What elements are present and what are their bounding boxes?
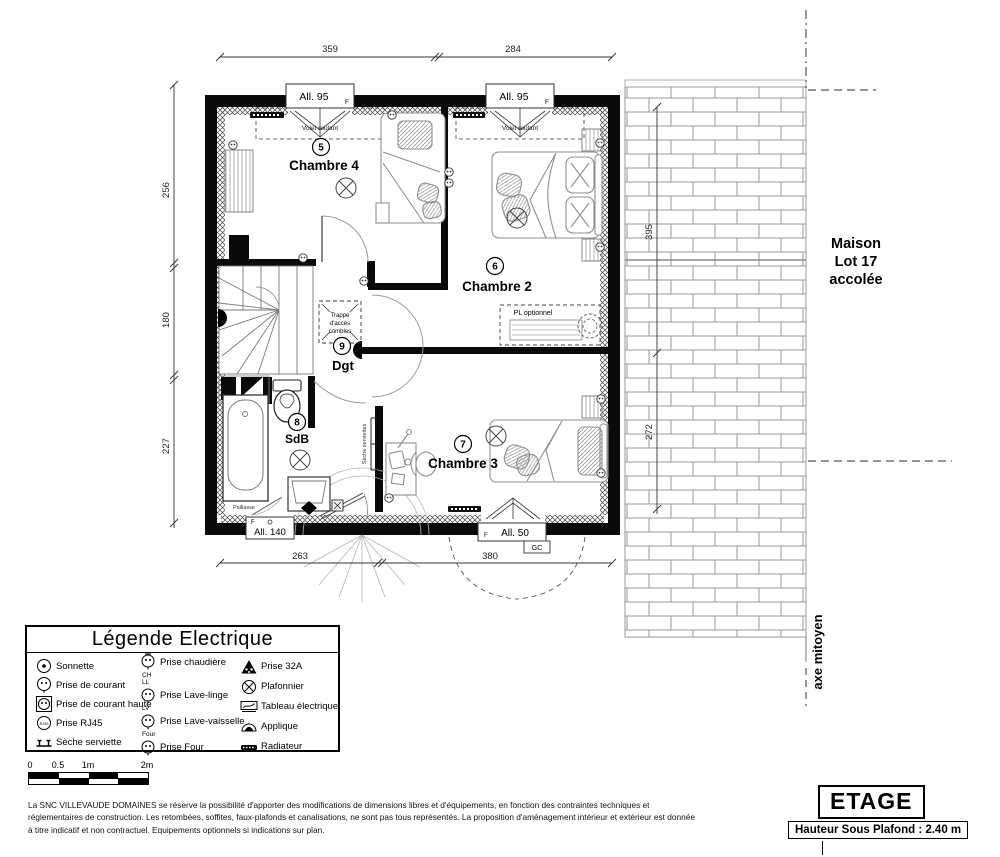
trappe-line3: combles [329, 329, 351, 335]
legend-label: Radiateur [261, 741, 302, 752]
legend-label: Prise de courant [56, 680, 125, 691]
svg-text:RJ45: RJ45 [40, 722, 49, 726]
neighbor-line2: Lot 17 [835, 254, 878, 270]
window-bottom-right: F All. 50 GC [449, 498, 585, 599]
socket-icon [597, 469, 605, 477]
socket-icon [596, 139, 604, 147]
room-name: Chambre 4 [289, 158, 359, 173]
staircase [219, 266, 313, 374]
trappe-line1: Trappe [331, 313, 350, 319]
plafonnier-icon [290, 450, 310, 470]
socket-icon [35, 676, 53, 694]
towel-warmer-icon [35, 733, 53, 751]
socket-icon [229, 141, 237, 149]
floor-plan-page: Maison Lot 17 accolée axe mitoyen [0, 0, 1000, 857]
radiator-icon [240, 738, 258, 756]
socket-icon [139, 738, 157, 756]
legend-label: Prise Four [160, 742, 204, 753]
legend-label: Sèche serviette [56, 737, 121, 748]
seche-serviettes-label: Sèche serviettes [362, 423, 368, 464]
scale-label: 1m [82, 760, 95, 770]
socket-icon [360, 277, 368, 285]
legend-item-lave-vaisselle: LV Prise Lave-vaisselle [139, 705, 244, 730]
legend-tag: LL [142, 679, 244, 686]
neighbor-house-wall [625, 80, 806, 637]
legend-label: Prise chaudière [160, 657, 226, 668]
legend-label: Sonnette [56, 661, 94, 672]
window-f-label: F [345, 99, 349, 106]
legend-item-chaudiere: Prise chaudière CH [139, 653, 244, 679]
window-label: All. 50 [501, 528, 529, 539]
neighbor-label: Maison Lot 17 accolée [829, 236, 882, 288]
legend-label: Tableau électrique [261, 701, 338, 712]
socket-icon [299, 254, 307, 262]
legend-item-rj45: RJ45 Prise RJ45 [35, 714, 152, 732]
electric-legend: Légende Electrique Sonnette Prise de cou… [25, 625, 340, 752]
legend-column-2: Prise chaudière CH LL Prise Lave-linge L… [139, 653, 244, 757]
legend-item-prise-haute: Prise de courant haute [35, 695, 152, 713]
legend-item-prise32a: Prise 32A [240, 657, 338, 676]
room-name: Chambre 3 [428, 456, 498, 471]
scale-label: 0.5 [52, 760, 65, 770]
pl-optionnel-label: PL optionnel [514, 310, 553, 317]
scale-label: 2m [141, 760, 154, 770]
room-number: 9 [339, 342, 345, 353]
plafonnier-icon [336, 178, 356, 198]
window-gc-label: GC [532, 545, 543, 552]
legend-column-1: Sonnette Prise de courant Prise de coura… [35, 657, 152, 752]
legend-tag: LV [142, 705, 244, 712]
dim-label: 227 [161, 438, 172, 454]
scale-bar-segments [28, 772, 149, 785]
socket-icon [385, 494, 393, 502]
applique-icon [240, 718, 258, 736]
dim-label: 284 [505, 44, 521, 55]
rj45-icon: RJ45 [35, 714, 53, 732]
scale-label: 0 [27, 760, 32, 770]
legend-item-tableau: Tableau électrique [240, 697, 338, 716]
dim-label: 380 [482, 551, 498, 562]
dimension-left: 256 180 227 [161, 81, 178, 528]
chambre2-furniture [492, 129, 602, 261]
socket-icon [596, 243, 604, 251]
dim-label: 180 [161, 312, 172, 328]
socket-icon [139, 712, 157, 730]
window-label: All. 95 [299, 91, 328, 103]
legend-tag: Four [142, 731, 244, 738]
window-label: All. 140 [254, 527, 286, 538]
legend-label: Prise RJ45 [56, 718, 102, 729]
window-f-label: F [484, 533, 488, 539]
legend-item-prise: Prise de courant [35, 676, 152, 694]
stage-title: ETAGE [818, 785, 925, 819]
legend-tag: CH [142, 672, 244, 679]
placard-optionnel: PL optionnel [500, 305, 602, 345]
window-f-label: F [545, 99, 549, 106]
dim-label: 395 [644, 224, 655, 240]
legend-item-radiateur: Radiateur [240, 737, 338, 756]
room-number: 5 [318, 143, 324, 154]
trappe-combles: Trappe d'accès combles [319, 301, 361, 343]
legend-item-seche-serviette: Sèche serviette [35, 733, 152, 751]
legend-label: Prise Lave-linge [160, 690, 228, 701]
neighbor-line3: accolée [829, 272, 882, 288]
legend-item-four: Four Prise Four [139, 731, 244, 756]
dim-label: 256 [161, 182, 172, 198]
dimension-top: 359 284 [216, 44, 616, 61]
legend-item-plafonnier: Plafonnier [240, 677, 338, 696]
socket-icon [388, 111, 396, 119]
scale-bar: 0 0.5 1m 2m [28, 760, 188, 790]
socket-icon [445, 168, 453, 176]
room-name: SdB [285, 432, 309, 446]
dim-label: 272 [644, 424, 655, 440]
applique-icon [353, 341, 362, 359]
legend-label: Applique [261, 721, 298, 732]
volet-label: Volet roulant [302, 125, 338, 132]
socket-high-icon [35, 695, 53, 713]
plafonnier-icon [240, 678, 258, 696]
dim-label: 263 [292, 551, 308, 562]
trappe-line2: d'accès [330, 321, 350, 327]
legend-label: Plafonnier [261, 681, 304, 692]
electrical-panel-icon [240, 698, 258, 716]
party-wall-axis [806, 10, 952, 706]
sonnette-icon [35, 657, 53, 675]
legend-column-3: Prise 32A Plafonnier Tableau électrique … [240, 657, 338, 757]
room-name: Chambre 2 [462, 279, 532, 294]
socket-icon [139, 686, 157, 704]
pointer-tick [822, 841, 823, 855]
socket-icon [445, 179, 453, 187]
legend-item-sonnette: Sonnette [35, 657, 152, 675]
room-number: 8 [294, 418, 300, 429]
room-name: Dgt [332, 358, 354, 373]
legend-item-lave-linge: LL Prise Lave-linge [139, 679, 244, 704]
dim-label: 359 [322, 44, 338, 55]
legend-label: Prise 32A [261, 661, 302, 672]
neighbor-line1: Maison [831, 236, 881, 252]
legend-item-applique: Applique [240, 717, 338, 736]
window-f-label: F [251, 520, 255, 526]
sdb-fixtures: Paillasse Sèche serviettes [223, 380, 377, 515]
window-label: All. 95 [499, 91, 528, 103]
room-number: 6 [492, 262, 498, 273]
socket-32a-icon [240, 658, 258, 676]
disclaimer-text: La SNC VILLEVAUDE DOMAINES se réserve la… [28, 799, 700, 836]
legend-label: Prise Lave-vaisselle [160, 716, 244, 727]
legend-title: Légende Electrique [27, 627, 338, 653]
paillasse-label: Paillasse [233, 505, 255, 511]
socket-icon [139, 653, 157, 671]
window-bottom-left: F All. 140 [246, 497, 294, 539]
legend-label: Prise de courant haute [56, 699, 152, 710]
room-number: 7 [460, 440, 466, 451]
volet-label: Volet roulant [502, 125, 538, 132]
ceiling-height-label: Hauteur Sous Plafond : 2.40 m [788, 821, 968, 839]
socket-icon [597, 395, 605, 403]
axis-label: axe mitoyen [810, 614, 825, 689]
